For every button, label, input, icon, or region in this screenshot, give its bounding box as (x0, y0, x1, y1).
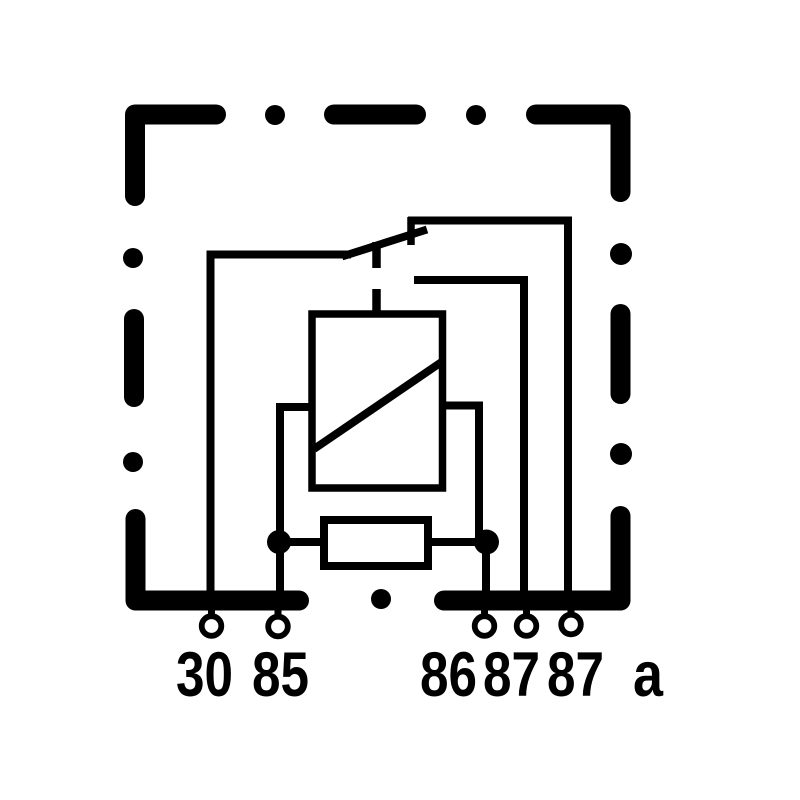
svg-text:30: 30 (176, 640, 233, 710)
svg-text:86: 86 (420, 640, 477, 710)
svg-text:87: 87 (547, 640, 604, 710)
svg-text:a: a (633, 640, 664, 710)
svg-text:85: 85 (252, 640, 309, 710)
svg-text:87: 87 (483, 640, 540, 710)
